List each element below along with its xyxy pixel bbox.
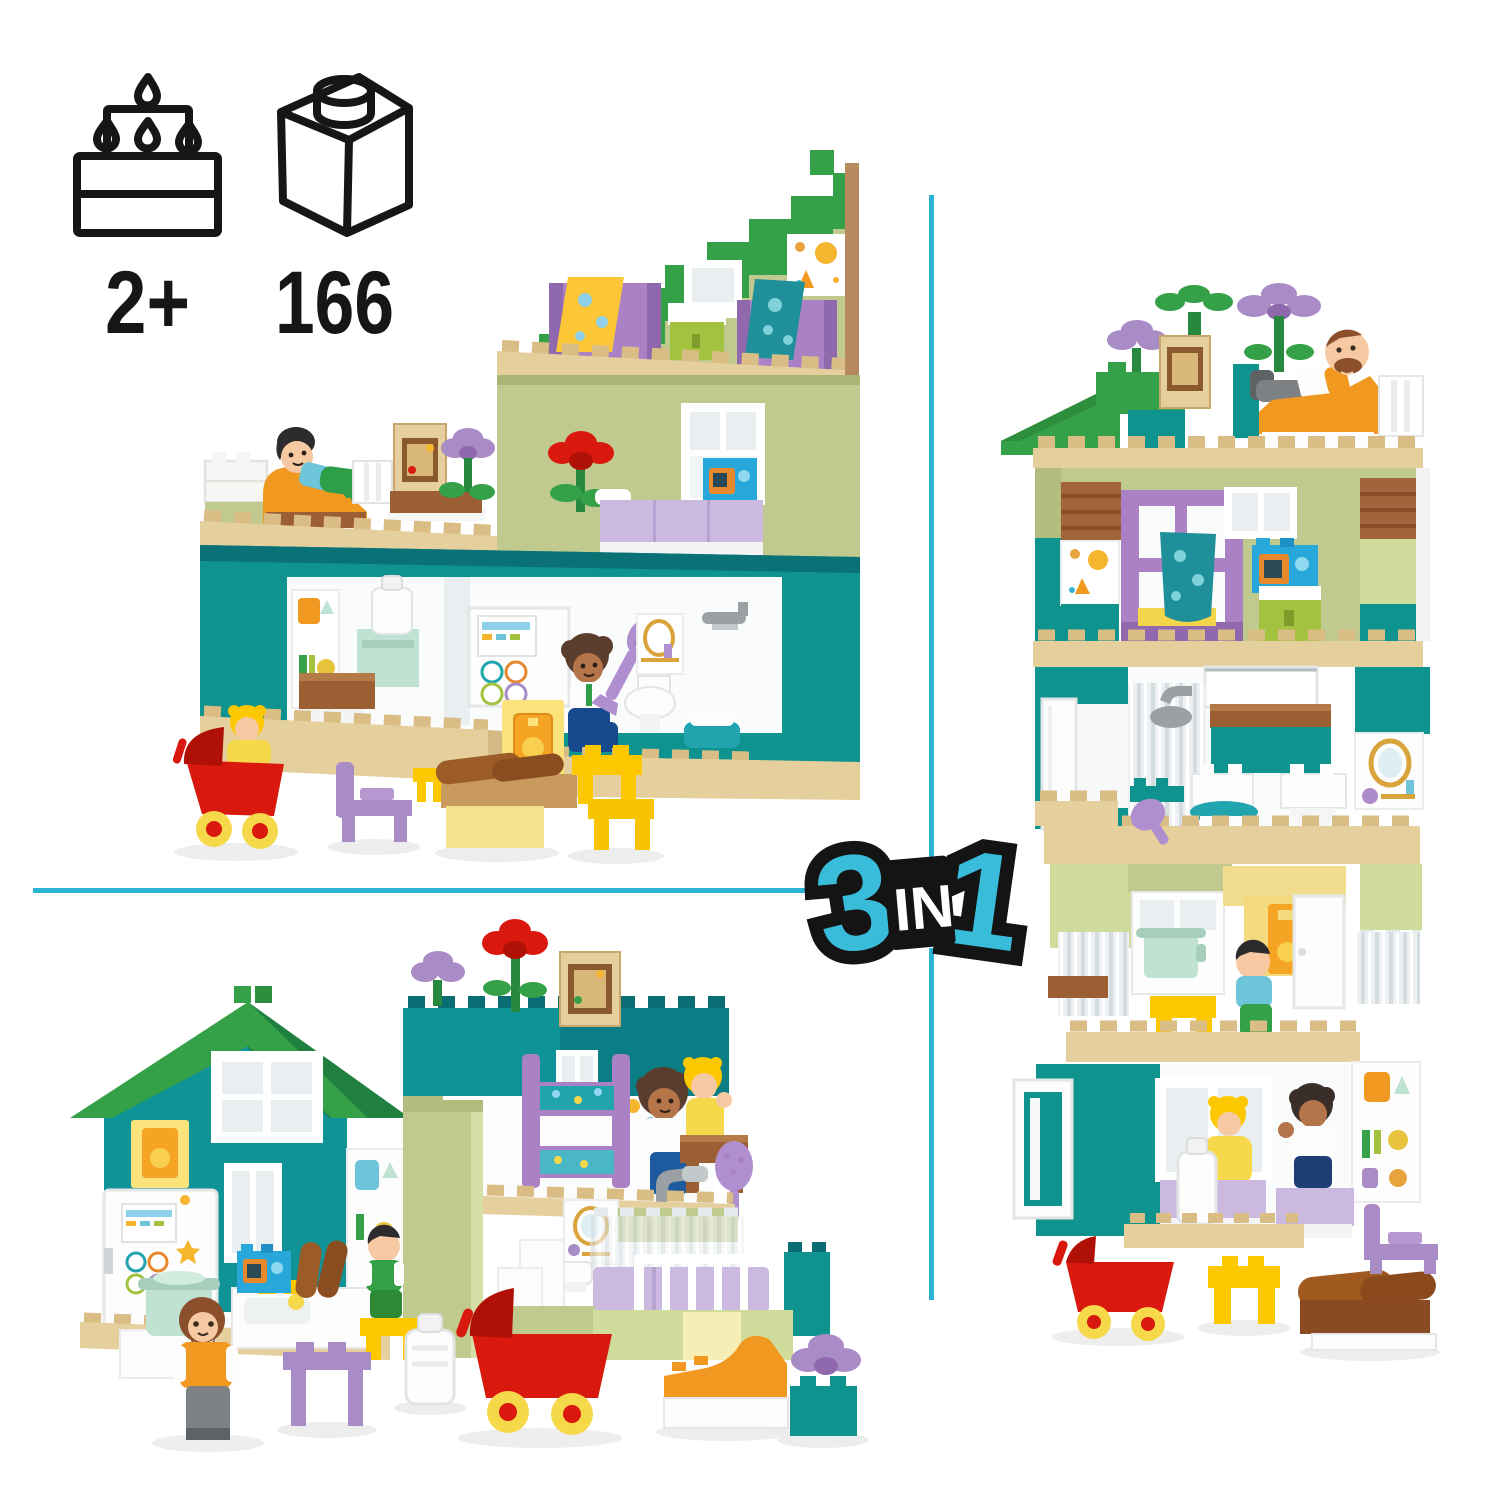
svg-text:166: 166 (275, 252, 394, 352)
svg-text:2+: 2+ (105, 252, 190, 352)
svg-text:IN: IN (891, 872, 957, 944)
